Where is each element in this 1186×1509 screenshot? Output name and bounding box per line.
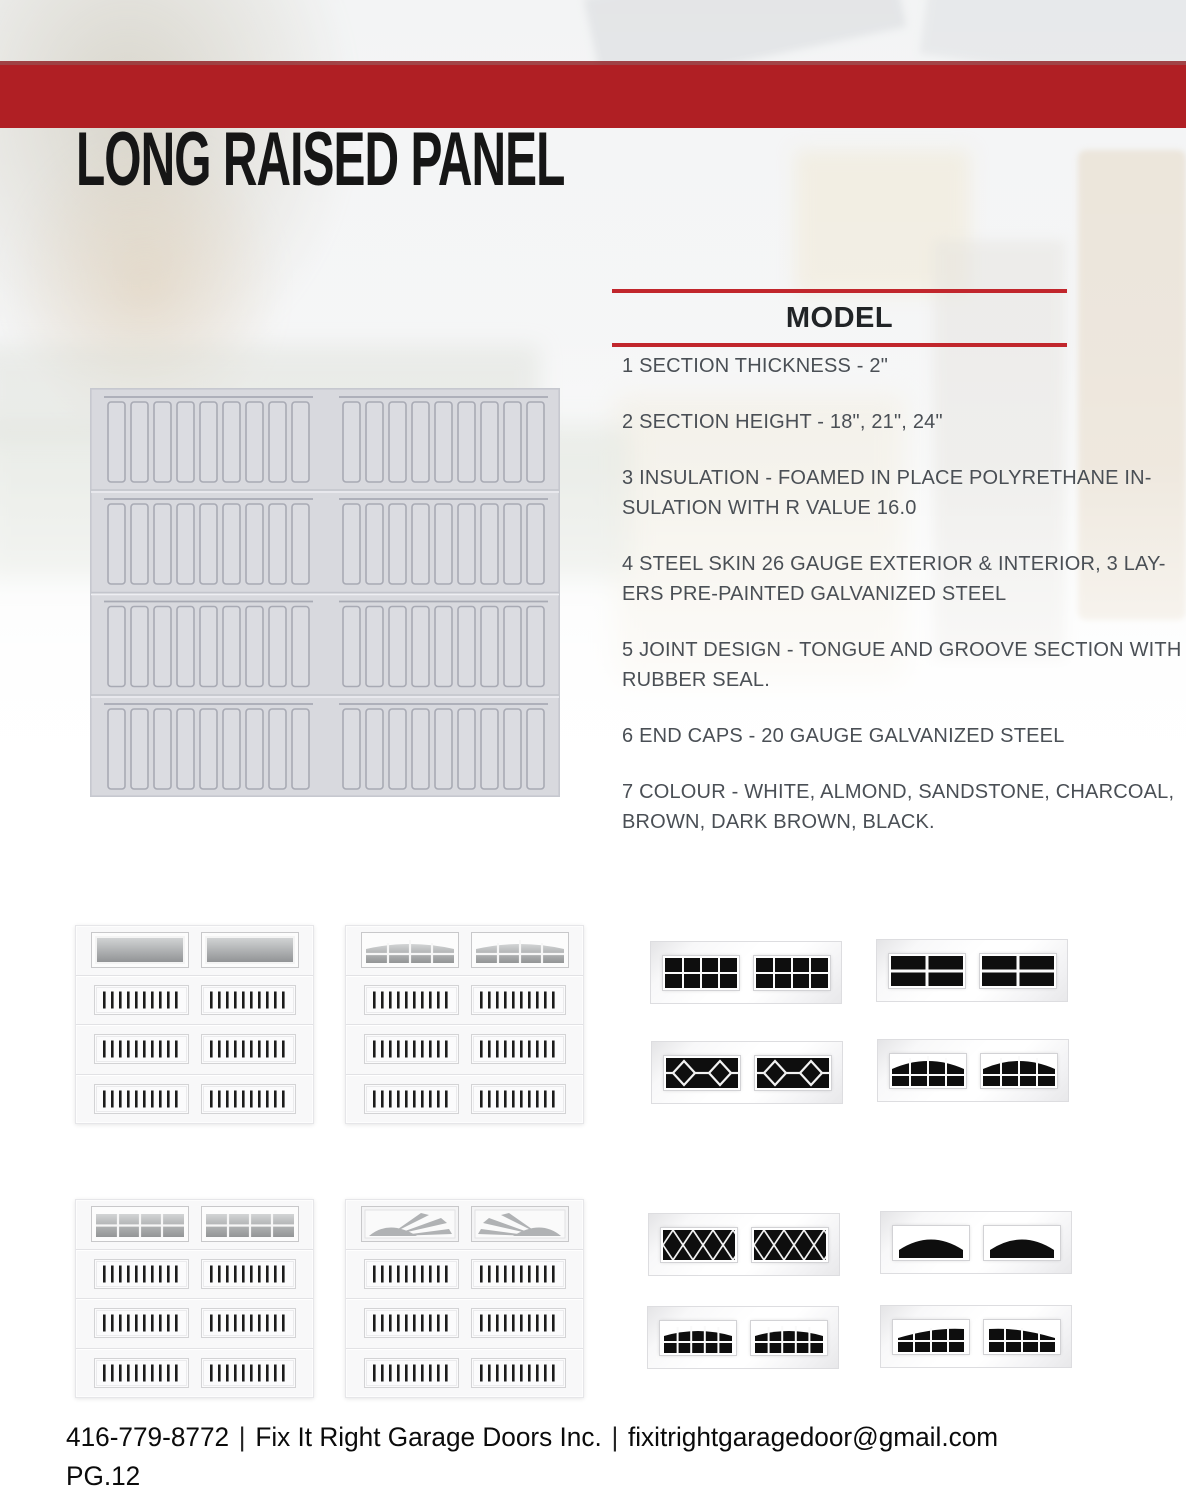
ribbed-panel	[201, 985, 296, 1015]
ribbed-panel	[94, 1034, 189, 1064]
ribbed-panel	[364, 1034, 459, 1064]
door-thumbnail-square-grid	[75, 1199, 314, 1398]
footer-email: fixitrightgaragedoor@gmail.com	[628, 1422, 998, 1452]
red-rule-bottom	[612, 343, 1067, 347]
wide-arch-grid-window-right	[984, 1320, 1060, 1354]
ribbed-panel	[364, 1259, 459, 1289]
window-row	[76, 1200, 313, 1249]
ribbed-panel	[471, 985, 566, 1015]
spec-item: 3 INSULATION - FOAMED IN PLACE POLYRETHA…	[622, 463, 1142, 523]
spec-item: 5 JOINT DESIGN - TONGUE AND GROOVE SECTI…	[622, 635, 1142, 695]
ribbed-panel	[94, 985, 189, 1015]
window-insert-cross-4-pane	[876, 939, 1068, 1002]
model-spec-list: 1 SECTION THICKNESS - 2" 2 SECTION HEIGH…	[622, 351, 1142, 863]
ribbed-panel	[201, 1084, 296, 1114]
ribbed-row	[76, 1024, 313, 1074]
plain-glass-window	[201, 932, 299, 968]
ribbed-row	[346, 975, 583, 1025]
door-thumbnail-arched-grid	[345, 925, 584, 1124]
window-insert-cathedral-arch	[877, 1039, 1069, 1102]
plain-arch-window	[984, 1226, 1060, 1260]
footer-separator: |	[239, 1422, 246, 1452]
model-panel: MODEL	[612, 289, 1067, 347]
wide-arch-grid-window-left	[893, 1320, 969, 1354]
footer-company: Fix It Right Garage Doors Inc.	[255, 1422, 601, 1452]
window-row	[346, 926, 583, 975]
ribbed-panel	[471, 1034, 566, 1064]
ribbed-panel	[201, 1034, 296, 1064]
ribbed-panel	[471, 1259, 566, 1289]
plain-arch-window	[893, 1226, 969, 1260]
ribbed-panel	[201, 1308, 296, 1338]
square-grid-window	[201, 1206, 299, 1242]
ribbed-panel	[364, 1084, 459, 1114]
ribbed-panel	[471, 1308, 566, 1338]
ribbed-row	[346, 1074, 583, 1124]
ribbed-panel	[94, 1358, 189, 1388]
spec-item: 4 STEEL SKIN 26 GAUGE EXTERIOR & INTERIO…	[622, 549, 1142, 609]
ribbed-panel	[94, 1084, 189, 1114]
cross-4-pane-window	[980, 954, 1056, 988]
page-title: LONG RAISED PANEL	[76, 128, 564, 192]
window-insert-arched-grid	[647, 1306, 839, 1369]
plain-glass-window	[91, 932, 189, 968]
footer-contact: 416-779-8772|Fix It Right Garage Doors I…	[66, 1422, 998, 1453]
spec-item: 1 SECTION THICKNESS - 2"	[622, 351, 1142, 381]
arched-grid-window	[361, 932, 459, 968]
ribbed-row	[76, 1074, 313, 1124]
ribbed-panel	[94, 1259, 189, 1289]
footer-page-number: PG.12	[66, 1461, 140, 1492]
ribbed-row	[346, 1298, 583, 1348]
red-rule-top	[612, 289, 1067, 293]
window-insert-wide-arch-grid	[880, 1305, 1072, 1368]
window-insert-plain-arch	[880, 1211, 1072, 1274]
window-insert-diamond-lattice	[648, 1213, 840, 1276]
cross-4-pane-window	[889, 954, 965, 988]
arched-grid-window	[751, 1321, 827, 1355]
ribbed-panel	[364, 985, 459, 1015]
window-row	[76, 926, 313, 975]
sunburst-window	[361, 1206, 459, 1242]
ribbed-row	[76, 1348, 313, 1398]
spec-item: 7 COLOUR - WHITE, ALMOND, SANDSTONE, CHA…	[622, 777, 1142, 837]
ribbed-panel	[364, 1358, 459, 1388]
spec-item: 6 END CAPS - 20 GAUGE GALVANIZED STEEL	[622, 721, 1142, 751]
arched-grid-window	[471, 932, 569, 968]
ribbed-row	[346, 1249, 583, 1299]
catalog-page: LONG RAISED PANEL MODEL 1 SECTION THICKN…	[0, 0, 1186, 1509]
square-grid-window	[91, 1206, 189, 1242]
ribbed-panel	[94, 1308, 189, 1338]
ribbed-panel	[471, 1084, 566, 1114]
model-heading: MODEL	[612, 302, 1067, 335]
double-diamond-window	[664, 1056, 740, 1090]
ribbed-row	[76, 975, 313, 1025]
double-diamond-window	[755, 1056, 831, 1090]
ribbed-row	[76, 1298, 313, 1348]
ribbed-panel	[471, 1358, 566, 1388]
colonial-grid-window	[754, 956, 830, 990]
sunburst-window	[471, 1206, 569, 1242]
ribbed-panel	[201, 1358, 296, 1388]
window-insert-colonial-grid	[650, 941, 842, 1004]
window-insert-double-diamond	[651, 1041, 843, 1104]
colonial-grid-window	[663, 956, 739, 990]
cathedral-arch-window	[890, 1054, 966, 1088]
ribbed-row	[346, 1348, 583, 1398]
ribbed-row	[76, 1249, 313, 1299]
door-thumbnail-plain-glass	[75, 925, 314, 1124]
door-thumbnail-sunburst	[345, 1199, 584, 1398]
footer-separator: |	[611, 1422, 618, 1452]
diamond-lattice-window	[752, 1228, 828, 1262]
cathedral-arch-window	[981, 1054, 1057, 1088]
ribbed-panel	[364, 1308, 459, 1338]
diamond-lattice-window	[661, 1228, 737, 1262]
arched-grid-window	[660, 1321, 736, 1355]
long-raised-panel-door-illustration	[90, 388, 560, 797]
ribbed-row	[346, 1024, 583, 1074]
ribbed-panel	[201, 1259, 296, 1289]
spec-item: 2 SECTION HEIGHT - 18", 21", 24"	[622, 407, 1142, 437]
window-row	[346, 1200, 583, 1249]
footer-phone: 416-779-8772	[66, 1422, 229, 1452]
